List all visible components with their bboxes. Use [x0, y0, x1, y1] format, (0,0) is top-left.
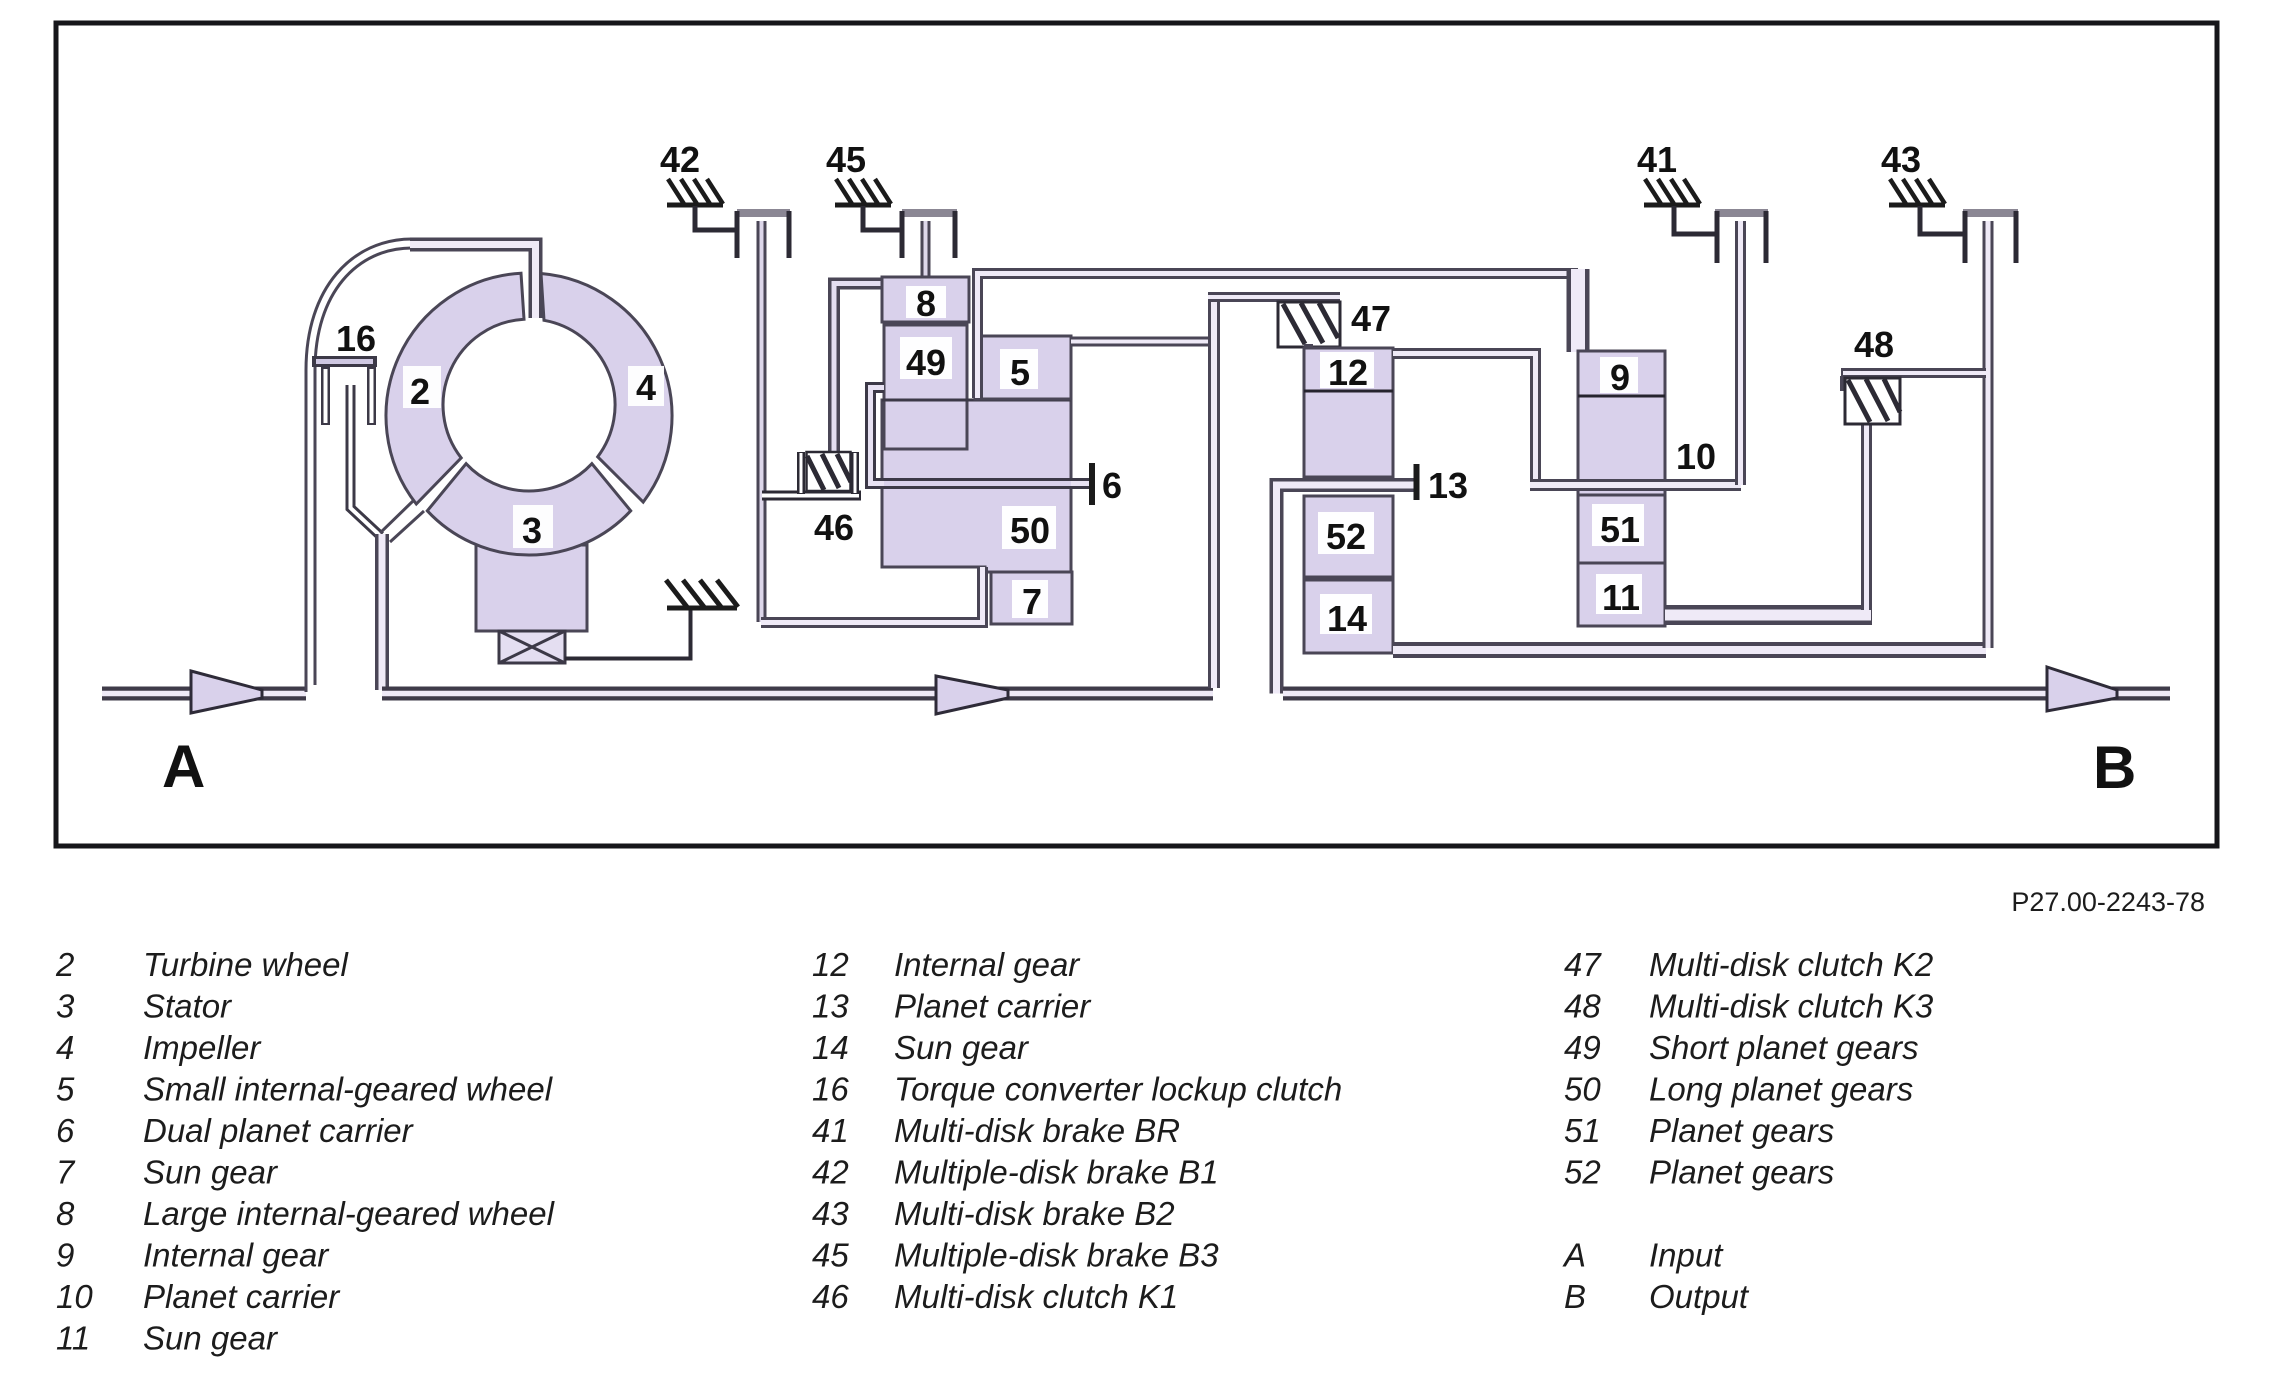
svg-text:43: 43	[812, 1195, 849, 1232]
svg-text:6: 6	[56, 1112, 75, 1149]
svg-text:Impeller: Impeller	[143, 1029, 262, 1066]
svg-text:41: 41	[1637, 139, 1677, 180]
svg-text:A: A	[162, 733, 205, 800]
svg-text:Small internal-geared wheel: Small internal-geared wheel	[143, 1071, 554, 1108]
svg-text:16: 16	[812, 1071, 849, 1108]
svg-text:B: B	[2093, 734, 2136, 801]
svg-text:49: 49	[906, 342, 946, 383]
svg-text:5: 5	[56, 1071, 75, 1108]
svg-text:41: 41	[812, 1112, 849, 1149]
svg-text:Internal gear: Internal gear	[894, 946, 1081, 983]
svg-text:48: 48	[1854, 324, 1894, 365]
svg-text:Sun gear: Sun gear	[143, 1320, 279, 1357]
svg-text:2: 2	[55, 946, 74, 983]
svg-text:49: 49	[1564, 1029, 1601, 1066]
svg-text:Multi-disk clutch K1: Multi-disk clutch K1	[894, 1278, 1178, 1315]
svg-text:16: 16	[336, 318, 376, 359]
svg-text:P27.00-2243-78: P27.00-2243-78	[2011, 887, 2205, 917]
svg-text:Multi-disk clutch K2: Multi-disk clutch K2	[1649, 946, 1933, 983]
svg-text:6: 6	[1102, 465, 1122, 506]
svg-text:8: 8	[56, 1195, 75, 1232]
svg-text:Internal gear: Internal gear	[143, 1237, 330, 1274]
svg-text:9: 9	[1610, 357, 1630, 398]
svg-text:Short planet gears: Short planet gears	[1649, 1029, 1919, 1066]
svg-text:A: A	[1562, 1237, 1586, 1274]
svg-text:11: 11	[56, 1320, 90, 1357]
svg-text:7: 7	[1022, 581, 1042, 622]
svg-text:42: 42	[660, 139, 700, 180]
svg-text:Multi-disk clutch K3: Multi-disk clutch K3	[1649, 988, 1934, 1025]
svg-text:7: 7	[56, 1154, 76, 1191]
svg-text:14: 14	[1327, 598, 1367, 639]
svg-text:Dual planet carrier: Dual planet carrier	[143, 1112, 415, 1149]
svg-text:3: 3	[522, 510, 542, 551]
svg-text:13: 13	[812, 988, 849, 1025]
svg-text:Planet gears: Planet gears	[1649, 1154, 1834, 1191]
svg-text:Sun gear: Sun gear	[143, 1154, 279, 1191]
svg-text:51: 51	[1600, 509, 1640, 550]
svg-text:Output: Output	[1649, 1278, 1750, 1315]
svg-text:Planet carrier: Planet carrier	[143, 1278, 341, 1315]
svg-text:Long planet gears: Long planet gears	[1649, 1071, 1913, 1108]
svg-text:Turbine wheel: Turbine wheel	[143, 946, 350, 983]
svg-text:12: 12	[812, 946, 849, 983]
svg-text:Sun gear: Sun gear	[894, 1029, 1030, 1066]
svg-text:14: 14	[812, 1029, 849, 1066]
svg-text:46: 46	[814, 507, 854, 548]
svg-text:45: 45	[812, 1237, 849, 1274]
svg-text:45: 45	[826, 139, 866, 180]
svg-text:Stator: Stator	[143, 988, 233, 1025]
svg-text:11: 11	[1602, 577, 1640, 618]
svg-text:Torque converter lockup clutch: Torque converter lockup clutch	[894, 1071, 1342, 1108]
svg-text:Multiple-disk brake B1: Multiple-disk brake B1	[894, 1154, 1219, 1191]
svg-text:4: 4	[56, 1029, 74, 1066]
svg-text:Planet gears: Planet gears	[1649, 1112, 1834, 1149]
svg-text:46: 46	[812, 1278, 849, 1315]
svg-text:Planet carrier: Planet carrier	[894, 988, 1092, 1025]
svg-text:51: 51	[1564, 1112, 1601, 1149]
svg-text:50: 50	[1564, 1071, 1601, 1108]
svg-text:5: 5	[1010, 352, 1030, 393]
svg-text:13: 13	[1428, 465, 1468, 506]
svg-text:42: 42	[812, 1154, 849, 1191]
svg-text:Multiple-disk brake B3: Multiple-disk brake B3	[894, 1237, 1219, 1274]
svg-text:10: 10	[56, 1278, 93, 1315]
svg-text:2: 2	[410, 371, 430, 412]
svg-text:48: 48	[1564, 988, 1601, 1025]
svg-text:50: 50	[1010, 510, 1050, 551]
svg-text:Multi-disk brake BR: Multi-disk brake BR	[894, 1112, 1180, 1149]
svg-text:B: B	[1564, 1278, 1586, 1315]
svg-text:12: 12	[1328, 352, 1368, 393]
svg-text:Large internal-geared wheel: Large internal-geared wheel	[143, 1195, 556, 1232]
svg-text:3: 3	[56, 988, 75, 1025]
svg-text:43: 43	[1881, 139, 1921, 180]
svg-text:Input: Input	[1649, 1237, 1724, 1274]
svg-text:47: 47	[1351, 298, 1391, 339]
svg-text:Multi-disk brake B2: Multi-disk brake B2	[894, 1195, 1175, 1232]
svg-text:8: 8	[916, 283, 936, 324]
svg-text:52: 52	[1326, 516, 1366, 557]
svg-text:47: 47	[1564, 946, 1602, 983]
svg-text:9: 9	[56, 1237, 74, 1274]
svg-text:52: 52	[1564, 1154, 1601, 1191]
svg-text:4: 4	[636, 367, 656, 408]
svg-text:10: 10	[1676, 436, 1716, 477]
